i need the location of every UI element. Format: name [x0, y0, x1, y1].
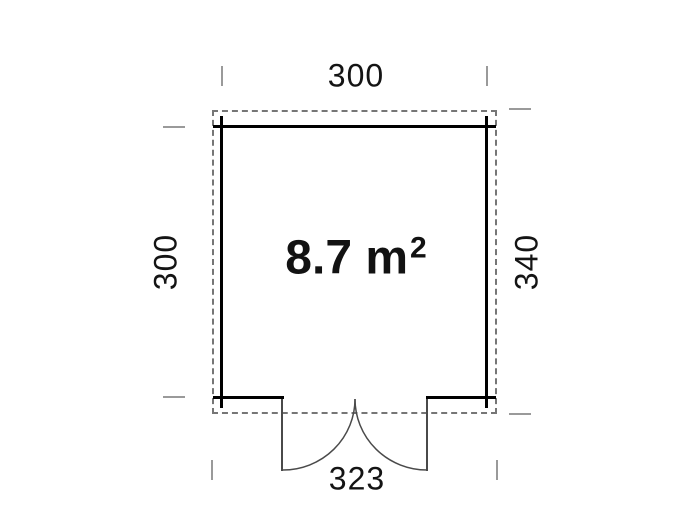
area-value: 8.7 m	[285, 232, 408, 285]
dimension-width-top: 300	[328, 58, 384, 95]
tick-right-lower	[509, 413, 531, 415]
tick-right-upper	[509, 108, 531, 110]
dimension-roof-width-bottom: 323	[329, 461, 385, 498]
tick-bottom-right	[496, 460, 498, 480]
area-label: 8.7 m2	[285, 231, 426, 286]
tick-left-lower	[163, 396, 185, 398]
wall-left	[220, 116, 223, 408]
wall-bottom-left	[213, 396, 284, 399]
dimension-roof-depth-right: 340	[509, 234, 546, 290]
tick-top-left	[221, 66, 223, 86]
tick-top-right	[486, 66, 488, 86]
wall-top	[213, 125, 496, 128]
door-leaf-right	[426, 399, 428, 471]
floor-plan: 300 300 340 323 8.7 m2	[0, 0, 700, 525]
area-superscript: 2	[410, 231, 427, 264]
door-leaf-left	[281, 399, 283, 471]
tick-left-upper	[163, 126, 185, 128]
wall-bottom-right	[426, 396, 496, 399]
tick-bottom-left	[211, 460, 213, 480]
dimension-depth-left: 300	[148, 234, 185, 290]
wall-right	[485, 116, 488, 408]
